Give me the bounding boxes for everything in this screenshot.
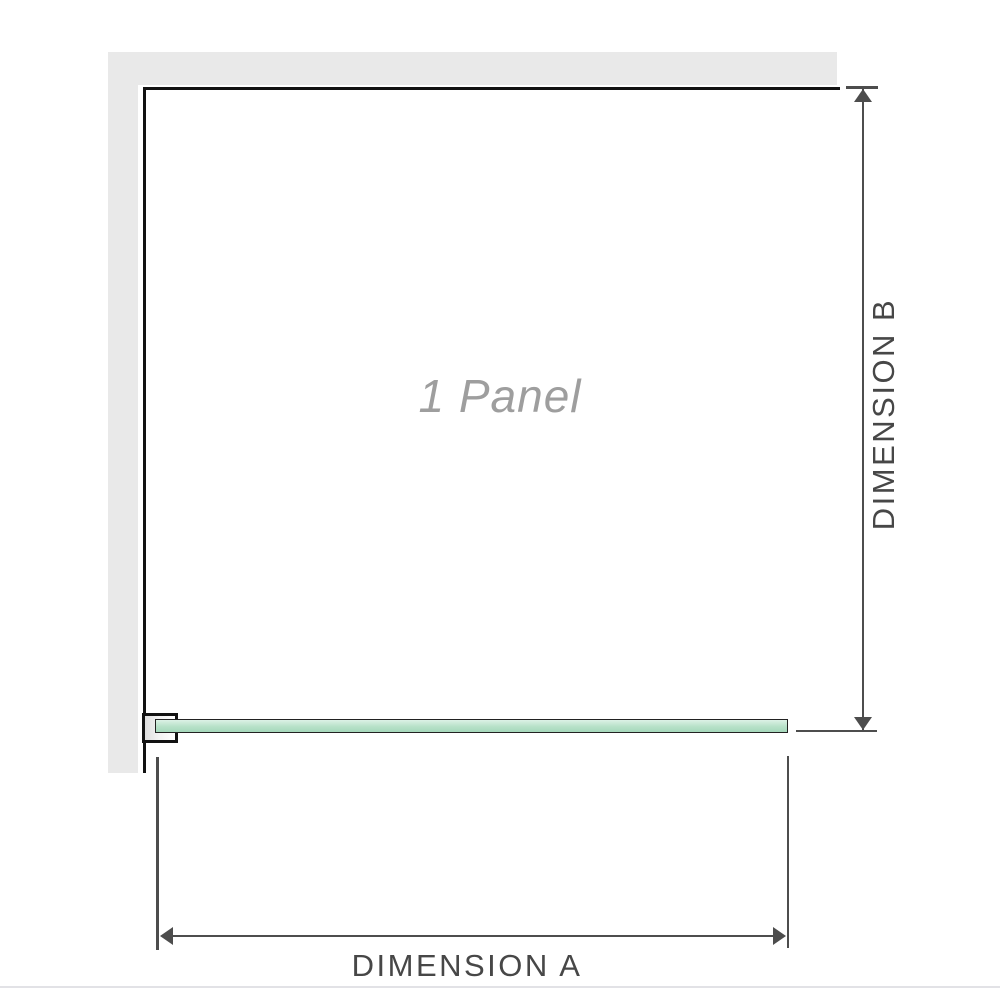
wall-top <box>108 52 837 85</box>
wall-left-edge <box>143 87 146 773</box>
wall-top-edge <box>143 87 840 90</box>
dimension-a-line <box>162 935 784 938</box>
dimension-a-label: DIMENSION A <box>352 948 583 984</box>
glass-panel <box>155 719 788 733</box>
shower-screen-dimension-diagram: 1 Panel DIMENSION B DIMENSION A <box>0 0 1000 1000</box>
dimension-b-line <box>862 89 865 731</box>
dimension-b-label: DIMENSION B <box>866 298 902 530</box>
panel-count-label: 1 Panel <box>418 369 581 423</box>
dimension-a-left-extension <box>156 757 159 950</box>
wall-left <box>108 52 138 773</box>
arrow-down-icon <box>854 717 872 730</box>
arrow-up-icon <box>854 89 872 102</box>
dimension-a-right-extension <box>787 756 790 948</box>
arrow-left-icon <box>160 927 173 945</box>
arrow-right-icon <box>773 927 786 945</box>
bottom-divider <box>0 986 1000 988</box>
